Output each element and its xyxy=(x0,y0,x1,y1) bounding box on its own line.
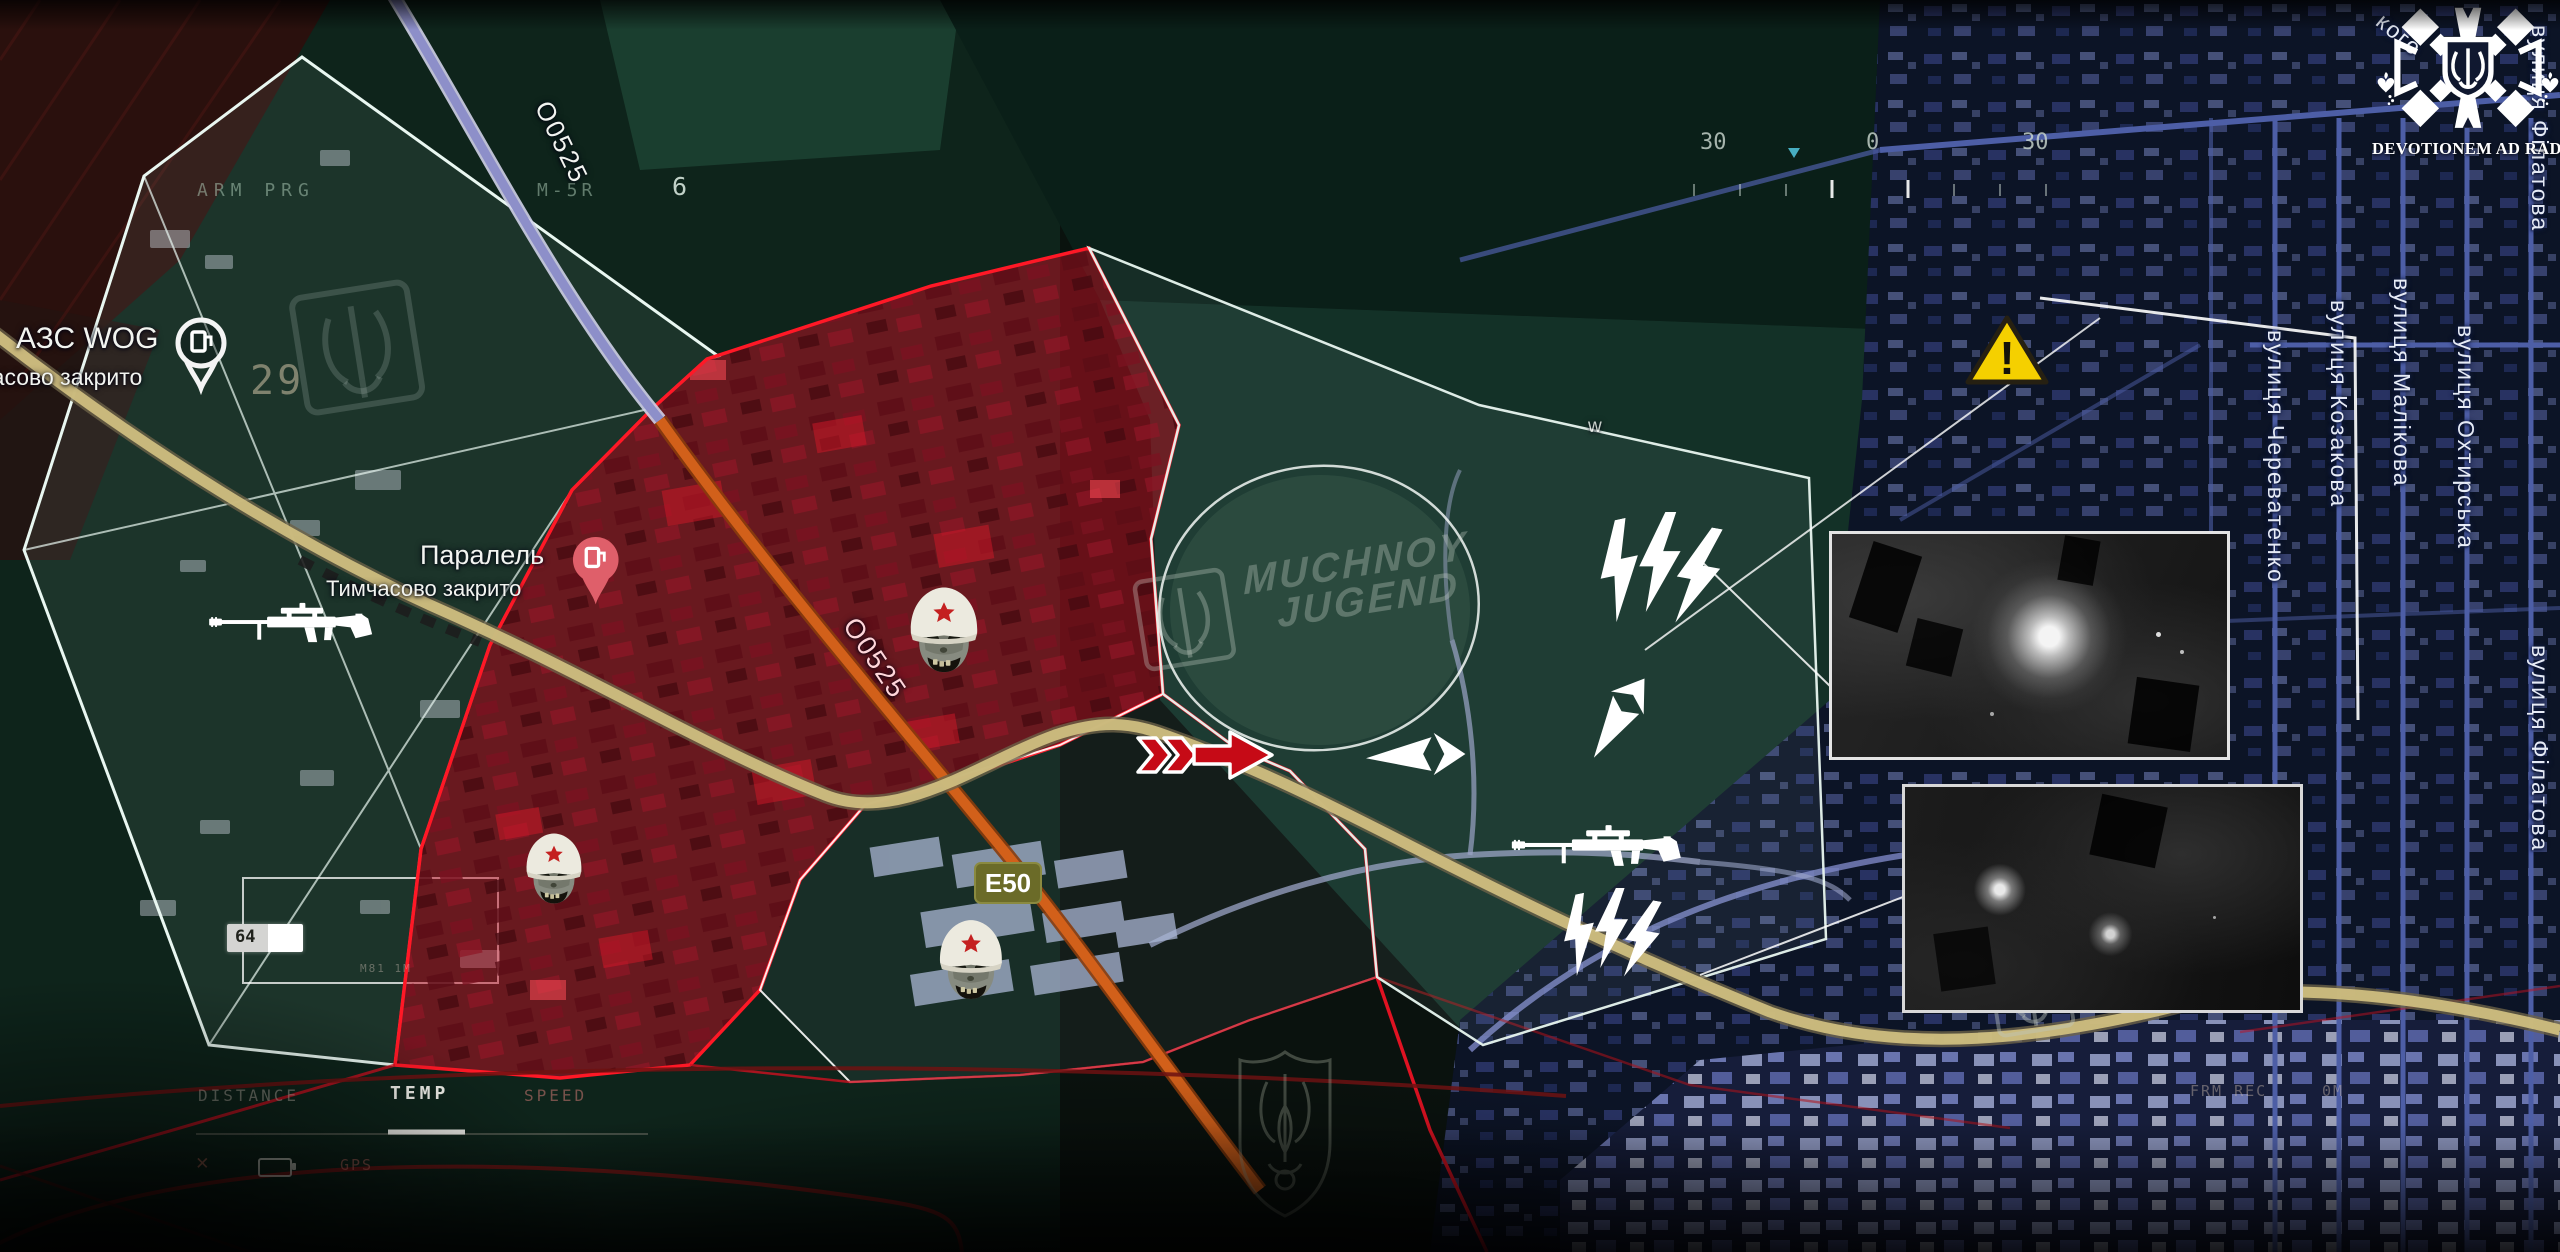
street-label-cherevatenko: вулиця Череватенко xyxy=(2262,330,2289,584)
battery-icon xyxy=(258,1158,292,1177)
hud-speed-tab[interactable]: SPEED xyxy=(524,1086,587,1105)
poi-gas-station-status: Тимчасово закрито xyxy=(0,364,142,391)
street-label-malikova: вулиця Малікова xyxy=(2388,278,2415,488)
situation-map[interactable]: ! ARM PRG M-5R 6 29 30 0 30 DISTANCE TEM… xyxy=(0,0,2560,1252)
street-label-kozakova: вулиця Козакова xyxy=(2325,300,2352,508)
hud-box-value: 64 xyxy=(235,927,255,947)
compass-center: 0 xyxy=(1866,130,1879,155)
unit-logo: DEVOTIONEM AD RADICES xyxy=(2372,6,2560,159)
hud-zero-m: 0M xyxy=(2322,1082,2344,1100)
warning-exclamation: ! xyxy=(1999,332,2014,384)
hud-distance-tab[interactable]: DISTANCE xyxy=(198,1086,299,1105)
compass-left: 30 xyxy=(1700,130,1727,155)
thermal-building xyxy=(1906,618,1964,677)
thermal-building xyxy=(1933,926,1996,991)
hud-arm-status: ARM PRG xyxy=(197,180,315,201)
close-icon[interactable]: ✕ xyxy=(196,1150,209,1174)
thermal-building xyxy=(2057,536,2100,586)
hud-frm-rec: FRM REC xyxy=(2190,1082,2267,1100)
street-label-filatova-bottom: вулиця Філатова xyxy=(2526,645,2553,852)
unit-motto: DEVOTIONEM AD RADICES xyxy=(2372,139,2560,159)
poi-gas-station-name: АЗС WOG xyxy=(16,322,158,356)
hud-channel: 6 xyxy=(672,172,687,201)
unit-emblem-icon xyxy=(2372,6,2560,134)
thermal-hotspot xyxy=(1990,712,1994,716)
poi-parallel-status: Тимчасово закрито xyxy=(326,576,521,602)
thermal-building xyxy=(2089,794,2168,869)
map-letter-w: w xyxy=(1588,416,1602,438)
hud-m81: M81 1M xyxy=(360,962,412,975)
thermal-inset-recon xyxy=(1902,784,2303,1013)
compass-right: 30 xyxy=(2022,130,2049,155)
poi-parallel-name: Паралель xyxy=(420,540,544,571)
thermal-building xyxy=(1848,541,1922,633)
hud-temp-tab[interactable]: TEMP xyxy=(390,1083,449,1104)
watermark-top-left xyxy=(286,276,430,424)
road-badge-e50: Е50 xyxy=(974,862,1042,904)
street-label-okhtyrska: вулиця Охтирська xyxy=(2452,325,2479,550)
hud-value-box: 64 xyxy=(227,924,303,952)
thermal-hotspot xyxy=(2180,650,2184,654)
thermal-hotspot xyxy=(2156,632,2161,637)
thermal-inset-strike xyxy=(1829,531,2230,760)
hud-gps: GPS xyxy=(340,1156,373,1174)
thermal-building xyxy=(2128,677,2200,752)
thermal-hotspot xyxy=(2213,916,2216,919)
watermark-emblem-icon xyxy=(286,276,429,419)
